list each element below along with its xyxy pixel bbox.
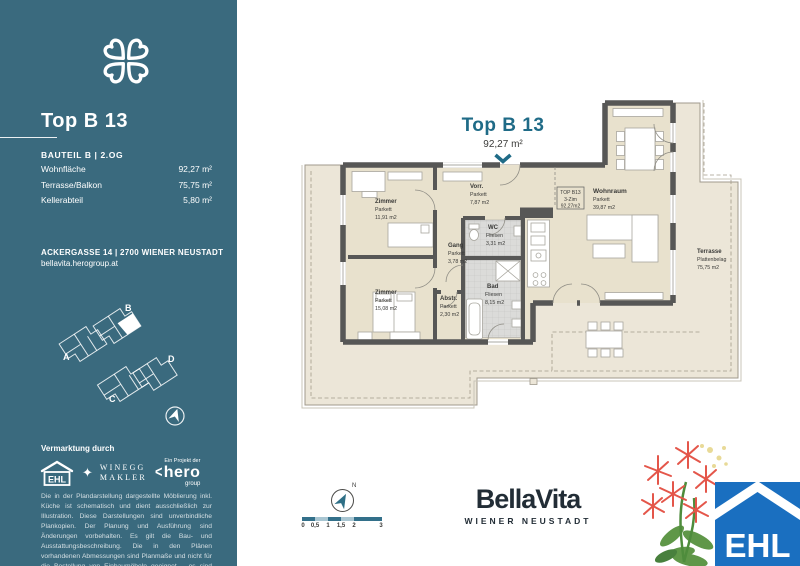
- room-area: 2,30 m2: [440, 312, 459, 318]
- project-address: ACKERGASSE 14 | 2700 WIENER NEUSTADT: [41, 248, 223, 257]
- wall-block: [520, 208, 553, 219]
- unit-box-line1: TOP B13: [560, 190, 581, 196]
- north-label: N: [352, 483, 356, 489]
- title-divider: [0, 137, 57, 138]
- detail-value: 92,27 m²: [178, 164, 212, 174]
- scale-mark: 0: [301, 523, 304, 529]
- room-label: Terrasse: [697, 249, 722, 255]
- compass-icon: [331, 489, 354, 512]
- unit-info-box: TOP B13 3-Zim 92,27m2: [557, 187, 584, 210]
- disclaimer-text: Die in der Plandarstellung dargestellte …: [41, 492, 212, 566]
- room-floor: Parkett: [593, 197, 610, 203]
- room-area: 75,75 m2: [697, 265, 719, 271]
- bellavita-knot-logo-icon: [99, 34, 153, 88]
- room-area: 3,78 m2: [448, 259, 467, 265]
- hero-suffix: group: [154, 481, 201, 487]
- ehl-logo-icon: EHL: [39, 459, 75, 487]
- brochure-page: Top B 13 BAUTEIL B | 2.OG Wohnfläche 92,…: [0, 0, 800, 566]
- room-area: 8,15 m2: [485, 300, 504, 306]
- toilet: [470, 230, 479, 241]
- unit-title: Top B 13: [41, 110, 128, 133]
- brand-title: BellaVita: [448, 484, 608, 515]
- detail-row: Wohnfläche 92,27 m²: [41, 164, 212, 174]
- hero-chevron-icon: <: [155, 465, 163, 481]
- bellavita-wordmark: BellaVita WIENER NEUSTADT: [448, 484, 608, 526]
- room-floor: Parkett: [470, 192, 487, 198]
- scale-mark: 1,5: [337, 523, 345, 529]
- marketing-heading: Vermarktung durch: [41, 444, 114, 453]
- room-floor: Fliesen: [485, 292, 502, 298]
- hero-group-logo: Ein Projekt der <hero group: [154, 459, 201, 488]
- room-label: Wohnraum: [593, 188, 627, 195]
- building-c-label: C: [109, 394, 116, 404]
- detail-value: 5,80 m²: [183, 195, 212, 205]
- sitemap-compass-icon: [166, 407, 184, 425]
- detail-label: Kellerabteil: [41, 195, 83, 205]
- building-b-label: B: [125, 303, 132, 313]
- detail-row: Kellerabteil 5,80 m²: [41, 195, 212, 205]
- room-area: 3,31 m2: [486, 241, 505, 247]
- detail-row: Terrasse/Balkon 75,75 m²: [41, 180, 212, 190]
- building-d-label: D: [168, 354, 175, 364]
- scale-bar: [302, 517, 382, 521]
- winegg-logo: WINEGG MAKLER: [100, 463, 147, 483]
- unit-box-line3: 92,27m2: [561, 204, 581, 210]
- building-b-outline: [93, 304, 141, 348]
- detail-value: 75,75 m²: [178, 180, 212, 190]
- room-floor: Parkett: [448, 251, 465, 257]
- sidebar: Top B 13 BAUTEIL B | 2.OG Wohnfläche 92,…: [0, 0, 237, 566]
- marketing-logos: EHL ✦ WINEGG MAKLER Ein Projekt der <her…: [39, 456, 219, 490]
- room-label: Vorr.: [470, 184, 484, 190]
- room-floor: Plattenbelag: [697, 257, 727, 263]
- room-area: 15,08 m2: [375, 306, 397, 312]
- winegg-line2: MAKLER: [100, 473, 147, 483]
- room-floor: Parkett: [440, 304, 457, 310]
- star-separator-icon: ✦: [82, 465, 93, 481]
- winegg-line1: WINEGG: [100, 463, 147, 473]
- detail-label: Terrasse/Balkon: [41, 180, 102, 190]
- scale-mark: 2: [352, 523, 355, 529]
- scale-mark: 3: [379, 523, 382, 529]
- room-label: Abstr.: [440, 296, 457, 302]
- room-area: 11,91 m2: [375, 215, 397, 221]
- ehl-badge-text: EHL: [725, 527, 791, 564]
- unit-box-line2: 3-Zim: [564, 197, 577, 203]
- room-floor: Parkett: [375, 298, 392, 304]
- unit-details: Wohnfläche 92,27 m² Terrasse/Balkon 75,7…: [41, 164, 212, 211]
- room-floor: Fliesen: [486, 233, 503, 239]
- room-label: Zimmer: [375, 199, 397, 205]
- room-label: Bad: [487, 284, 499, 290]
- site-map: A B C D: [35, 298, 190, 433]
- scale-mark: 0,5: [311, 523, 319, 529]
- room-label: Zimmer: [375, 290, 397, 296]
- room-area: 39,87 m2: [593, 205, 615, 211]
- building-a-label: A: [63, 352, 70, 362]
- room-area: 7,87 m2: [470, 200, 489, 206]
- unit-meta: BAUTEIL B | 2.OG: [41, 150, 123, 160]
- ehl-badge: EHL: [715, 482, 800, 566]
- ehl-roof-icon: [715, 482, 800, 520]
- ehl-logo-text: EHL: [48, 475, 67, 485]
- hero-name: hero: [164, 464, 201, 481]
- room-floor: Parkett: [375, 207, 392, 213]
- highlighted-unit: [118, 313, 141, 335]
- terrace-drain: [530, 379, 537, 385]
- room-label: Gang: [448, 243, 464, 249]
- room-label: WC: [488, 225, 499, 231]
- project-website[interactable]: bellavita.herogroup.at: [41, 259, 118, 268]
- detail-label: Wohnfläche: [41, 164, 86, 174]
- floor-plan: TOP B13 3-Zim 92,27m2 Zimmer Parkett 11,…: [300, 95, 750, 417]
- brand-subtitle: WIENER NEUSTADT: [448, 516, 608, 526]
- scale-mark: 1: [326, 523, 329, 529]
